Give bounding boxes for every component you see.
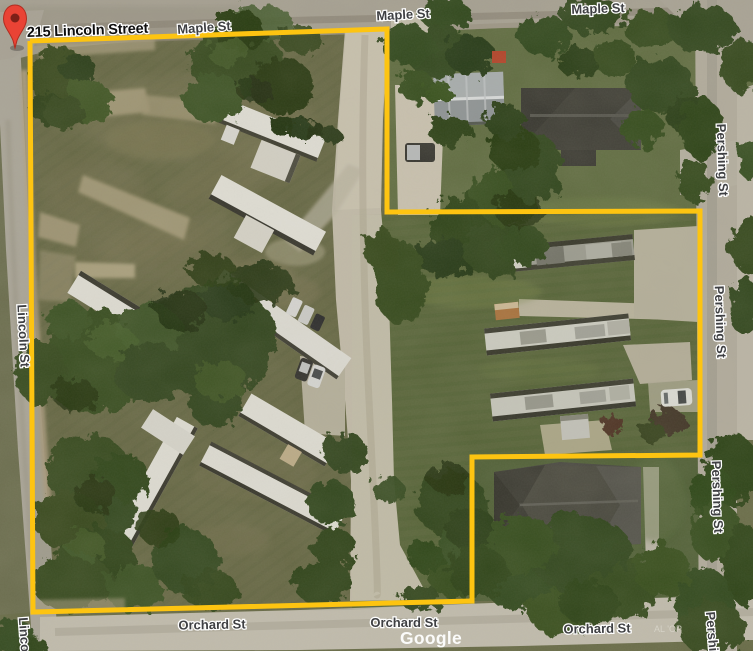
svg-text:Pershing St: Pershing St <box>712 285 730 358</box>
svg-text:Pershing St: Pershing St <box>709 460 727 533</box>
svg-text:Pershing St: Pershing St <box>714 123 732 196</box>
svg-text:Maple St: Maple St <box>571 0 626 17</box>
svg-text:Orchard St: Orchard St <box>563 620 631 636</box>
svg-text:Maple St: Maple St <box>376 6 431 24</box>
svg-text:Google: Google <box>400 628 462 648</box>
svg-text:Orchard St: Orchard St <box>178 616 246 632</box>
svg-text:AL 'OP: AL 'OP <box>654 624 682 634</box>
